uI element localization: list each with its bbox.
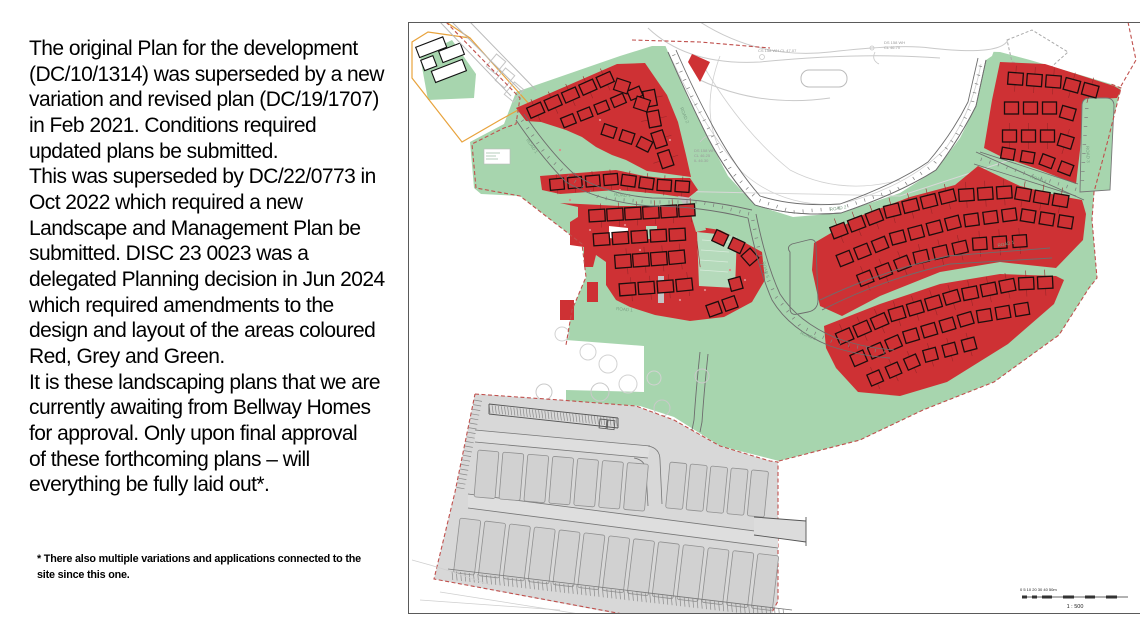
- svg-text:1 : 500: 1 : 500: [1067, 604, 1084, 610]
- svg-text:CL 46.70: CL 46.70: [884, 45, 901, 50]
- svg-text:0 5 10 20 30: 0 5 10 20 30 40 50m: [1020, 587, 1057, 592]
- svg-text:CS 158 WH CL 47.07: CS 158 WH CL 47.07: [758, 48, 797, 53]
- svg-text:IL 46.30: IL 46.30: [694, 158, 709, 163]
- svg-text:ROAD 3: ROAD 3: [1085, 146, 1091, 163]
